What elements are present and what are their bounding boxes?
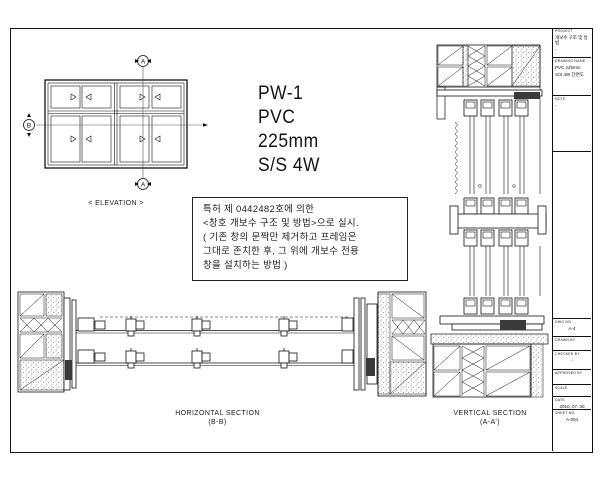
right-jamb-profile	[342, 298, 377, 390]
elevation-caption: < ELEVATION >	[45, 200, 187, 207]
title-block-row-drawn-by: DRAWN BY	[553, 337, 591, 351]
title-block-note: NOTE -	[553, 96, 591, 152]
marker-b-letter: B	[27, 122, 31, 129]
note-value: -	[555, 103, 589, 109]
title-block-row-sheet-no: SHEET No. A-004	[553, 410, 591, 451]
drawn-by-label: DRAWN BY	[555, 338, 589, 342]
title-block-row-checked-by: CHECKED BY -	[553, 351, 591, 370]
title-block-row-dwg-no: DWG No. A-4	[553, 319, 591, 337]
title-block-drawing-name: DRAWING NAME PVC 225mm S/S 4W 단면도	[553, 58, 591, 96]
vertical-section-caption: VERTICAL SECTION (A-A')	[430, 409, 550, 427]
spec-line-type: PW-1	[258, 82, 320, 106]
section-marker-b: B	[24, 113, 35, 137]
sill-frame-profile	[440, 296, 548, 336]
horizontal-section-subtitle: (B-B)	[140, 418, 295, 427]
checked-by-label: CHECKED BY	[555, 352, 589, 356]
title-block: PROJECT 개보수 구조 및 방법 - DRAWING NAME PVC 2…	[552, 28, 591, 451]
project-value: 개보수 구조 및 방법	[555, 35, 589, 46]
marker-a-bottom-letter: A	[141, 181, 146, 188]
patent-note-box: 특허 제 0442482호에 의한 <창호 개보수 구조 및 방법>으로 실시.…	[192, 197, 408, 281]
date-label: DATE	[555, 398, 589, 402]
header-wall-hatch	[437, 45, 540, 87]
vertical-section-subtitle: (A-A')	[430, 418, 550, 427]
title-block-project: PROJECT 개보수 구조 및 방법 -	[553, 28, 591, 58]
window-spec: PW-1 PVC 225mm S/S 4W	[258, 82, 320, 178]
elevation-drawing	[36, 67, 208, 178]
note-line-1: 특허 제 0442482호에 의한	[203, 203, 403, 217]
project-label: PROJECT	[555, 29, 589, 33]
scale-label: SCALE	[555, 386, 589, 390]
left-wall-hatch	[18, 292, 64, 392]
date-value: 2010. 07. 30	[555, 404, 589, 409]
drawing-name-value-2: S/S 4W 단면도	[555, 72, 589, 78]
head-frame-profile	[437, 90, 542, 116]
approved-by-label: APPROVED BY	[555, 371, 589, 375]
transom-profile	[450, 194, 548, 246]
sash-direction-icons	[71, 94, 160, 142]
spec-line-config: S/S 4W	[258, 154, 320, 178]
note-label: NOTE	[555, 97, 589, 101]
note-line-5: 창을 설치하는 방법 )	[203, 259, 403, 273]
title-block-row-date: DATE 2010. 07. 30	[553, 397, 591, 410]
dwg-no-value: A-4	[555, 326, 589, 331]
left-jamb-profile	[64, 298, 105, 390]
title-block-row-approved-by: APPROVED BY	[553, 370, 591, 385]
horizontal-section-caption: HORIZONTAL SECTION (B-B)	[140, 409, 295, 427]
vertical-section-drawing	[431, 45, 548, 397]
note-line-3: ( 기존 창의 문짝만 제거하고 프레임은	[203, 231, 403, 245]
title-block-spacer	[553, 152, 591, 319]
horizontal-section-drawing	[18, 292, 426, 396]
drawing-sheet: A A B	[0, 0, 600, 480]
sheet-no-label: SHEET No.	[555, 411, 589, 415]
section-marker-a-bottom: A	[135, 179, 151, 190]
spec-line-depth: 225mm	[258, 130, 320, 154]
sheet-no-value: A-004	[555, 417, 589, 422]
section-marker-a-top: A	[135, 56, 151, 67]
note-line-4: 그대로 존치한 후, 그 위에 개보수 전용	[203, 245, 403, 259]
vertical-section-title: VERTICAL SECTION	[430, 409, 550, 418]
title-block-row-scale: SCALE	[553, 385, 591, 397]
drawing-name-label: DRAWING NAME	[555, 59, 589, 63]
horizontal-section-title: HORIZONTAL SECTION	[140, 409, 295, 418]
right-wall-hatch	[378, 292, 426, 396]
project-sub: -	[555, 47, 589, 53]
note-line-2: <창호 개보수 구조 및 방법>으로 실시.	[203, 217, 403, 231]
marker-a-top-letter: A	[141, 58, 146, 65]
drawing-name-value-1: PVC 225mm	[555, 65, 589, 71]
sill-wall-hatch	[431, 334, 548, 397]
dwg-no-label: DWG No.	[555, 320, 589, 324]
spec-line-material: PVC	[258, 106, 320, 130]
checked-by-value: -	[555, 358, 589, 363]
